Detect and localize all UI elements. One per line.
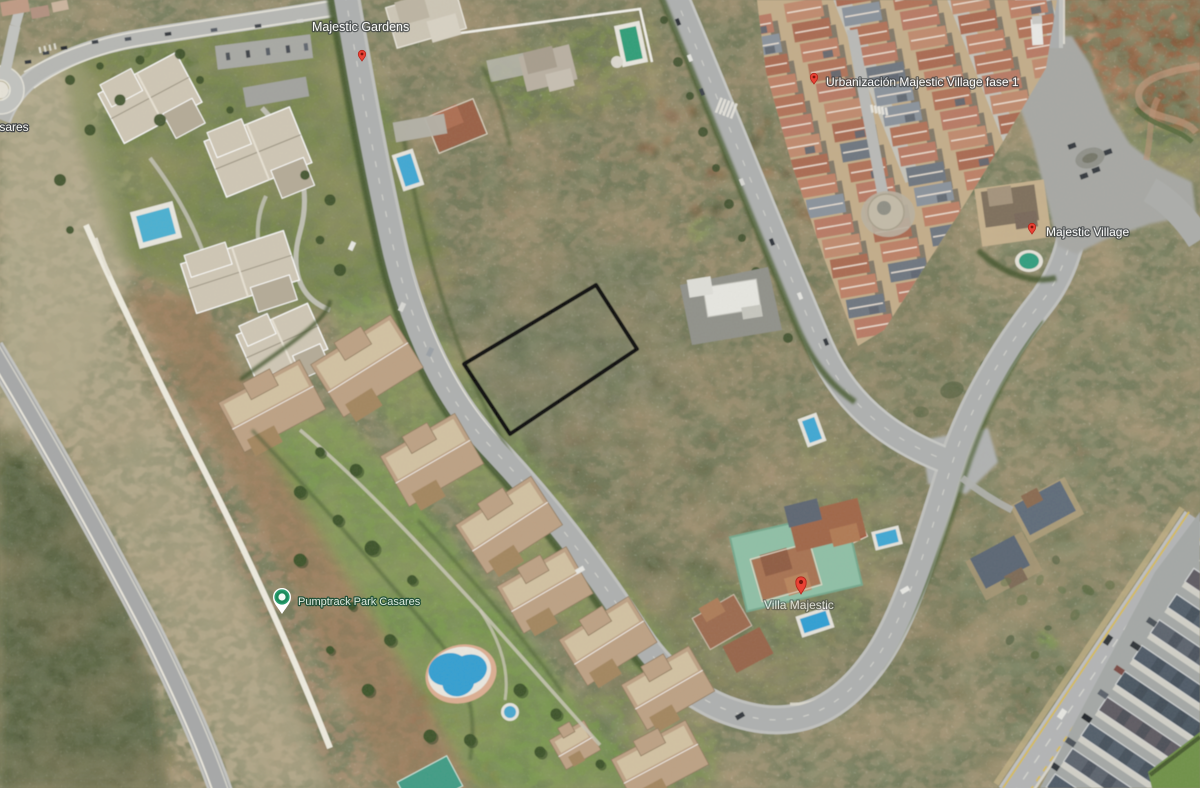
svg-text:Urbanización Majestic Village: Urbanización Majestic Village fase 1	[826, 75, 1019, 89]
svg-text:Majestic Gardens: Majestic Gardens	[312, 20, 409, 34]
svg-text:Majestic Village: Majestic Village	[1046, 225, 1129, 239]
svg-text:Pumptrack Park Casares: Pumptrack Park Casares	[298, 596, 421, 608]
svg-text:Casares: Casares	[0, 120, 29, 134]
svg-text:Villa Majestic: Villa Majestic	[764, 598, 834, 612]
